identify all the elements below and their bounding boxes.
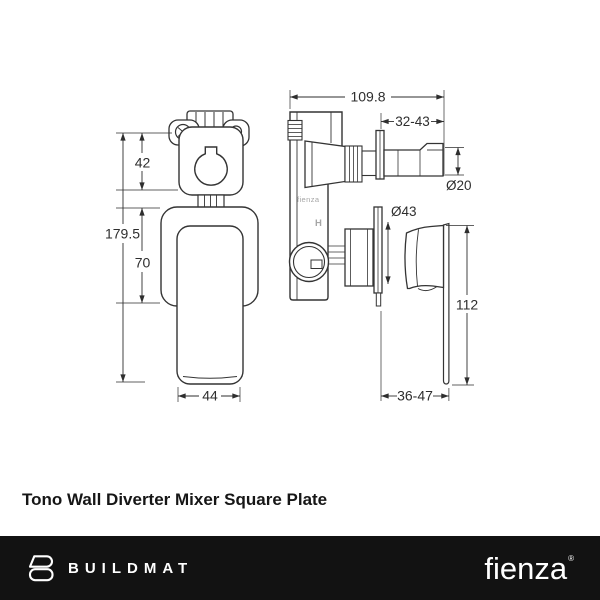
dim-label-spout-diameter: Ø20 xyxy=(446,178,472,193)
buildmat-wordmark: BUILDMAT xyxy=(68,560,193,577)
dim-label-plate-height: 70 xyxy=(135,255,151,271)
dim-label-handle-height: 112 xyxy=(456,297,479,313)
dim-label-handle-width: 44 xyxy=(202,388,218,404)
body-brand-text: fienza xyxy=(297,195,320,204)
inlet-port xyxy=(290,243,329,282)
spec-sheet-page: 42 179.5 70 44 xyxy=(0,0,600,600)
mixer-handle-front xyxy=(177,226,243,384)
handle-lever-side xyxy=(444,224,449,385)
product-title: Tono Wall Diverter Mixer Square Plate xyxy=(22,490,327,510)
spout-side xyxy=(384,144,443,177)
handle-body-side xyxy=(405,226,444,289)
dim-label-spout-adjust: 32-43 xyxy=(395,114,430,129)
dim-label-overall-height: 179.5 xyxy=(105,226,140,242)
buildmat-logo: BUILDMAT xyxy=(26,554,193,583)
dim-label-top-section: 42 xyxy=(135,155,151,171)
technical-drawing: 42 179.5 70 44 xyxy=(0,0,600,485)
dim-label-handle-depth: 36-47 xyxy=(397,388,433,404)
body-h-mark: H xyxy=(315,218,322,229)
front-view-drawing xyxy=(161,111,258,384)
dim-label-overall-depth: 109.8 xyxy=(350,89,385,105)
dim-label-cartridge-diameter: Ø43 xyxy=(391,204,417,219)
fienza-wordmark: fienza xyxy=(484,551,567,586)
side-view-drawing: fienza H xyxy=(288,112,449,384)
footer-bar: BUILDMAT fienza® xyxy=(0,536,600,600)
fienza-logo: fienza® xyxy=(484,553,574,584)
buildmat-icon xyxy=(26,554,57,583)
fienza-registered-mark: ® xyxy=(568,554,574,563)
